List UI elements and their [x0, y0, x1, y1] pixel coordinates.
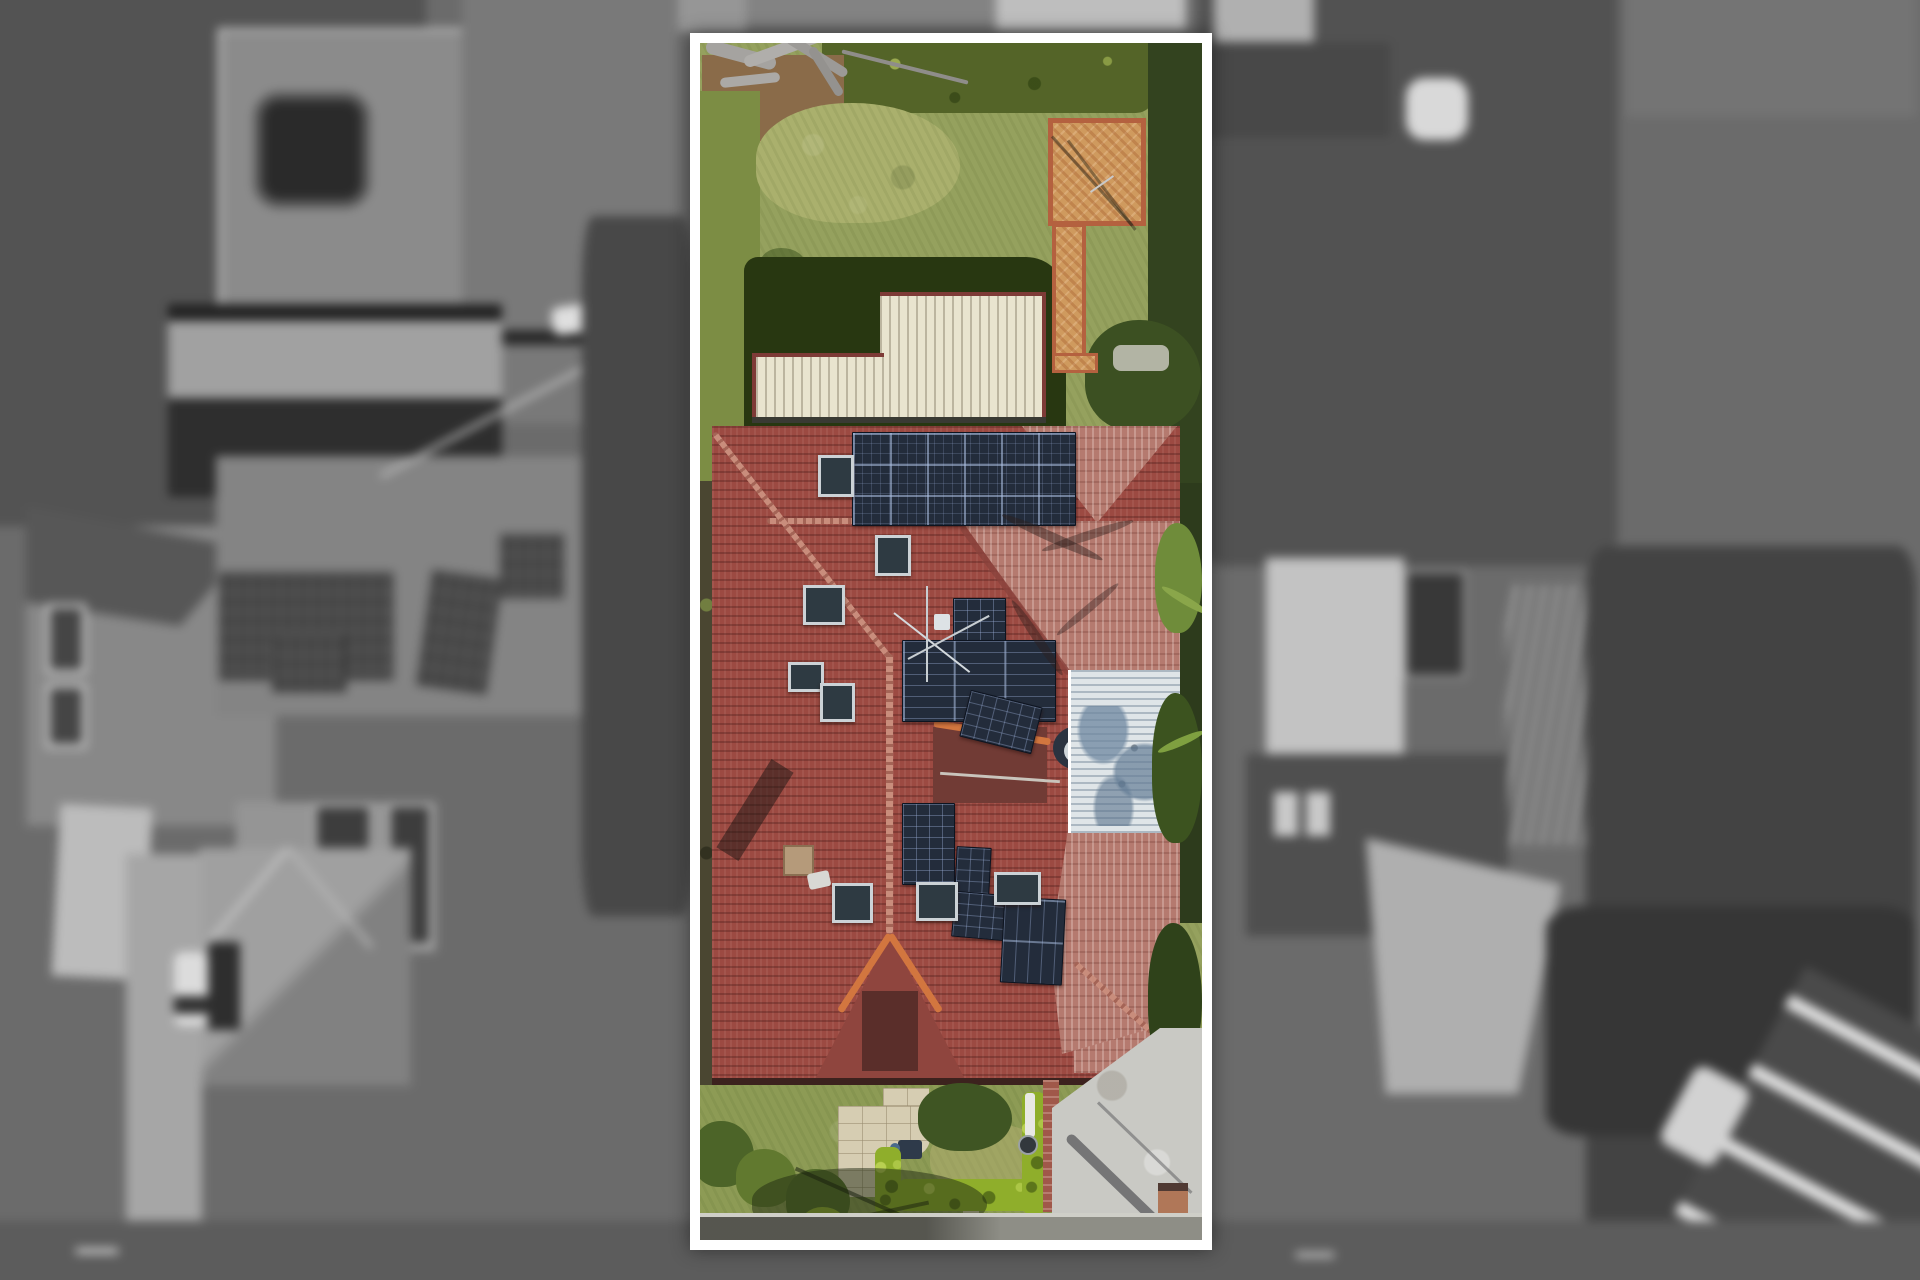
garden-wheel [1018, 1135, 1038, 1155]
garden-tree [918, 1083, 1012, 1151]
wheelie-bin [898, 1140, 922, 1159]
skylight [820, 683, 855, 722]
street-strip [700, 1217, 1202, 1240]
bg-deck-roof [1214, 0, 1314, 44]
aerial-listing-image [0, 0, 1920, 1280]
bg-trees-left-of-frame [582, 216, 692, 916]
antenna-plate [934, 614, 950, 630]
bg-white-blob [1406, 78, 1468, 140]
cream-garage-roof-left [752, 353, 884, 421]
bg-window-grid3 [1404, 570, 1466, 678]
bg-dark-porch [208, 942, 240, 1030]
chimney [783, 845, 814, 876]
rear-hedge [822, 43, 1154, 113]
tv-antenna-mast [926, 586, 928, 682]
sunlit-lawn-patch [756, 103, 960, 223]
bg-driveway-left [126, 854, 202, 1266]
bg-solar-array2 [272, 634, 346, 692]
bg-car-window [174, 996, 208, 1014]
brick-patio [1048, 118, 1146, 226]
skylight [788, 662, 824, 692]
property-photo [700, 43, 1202, 1240]
bg-roof-top2 [746, 0, 996, 26]
skylight [803, 585, 845, 625]
bg-road-topright [1626, 0, 1916, 116]
solar-block-lower-right [1000, 896, 1066, 985]
brick-path [1052, 223, 1086, 373]
property-boundary-frame [690, 33, 1212, 1250]
bg-window2 [46, 684, 86, 748]
shaded-grass-right [1085, 320, 1201, 432]
bg-skylight1 [1274, 792, 1298, 836]
garage-eave-shadow [752, 417, 1046, 423]
main-house-roof [712, 426, 1180, 1085]
skylight [875, 535, 911, 576]
bg-road-marking1 [76, 1248, 118, 1254]
skylight [832, 883, 873, 923]
bg-skylight2 [1306, 792, 1330, 836]
skylight [916, 882, 958, 921]
bg-deck-railing [1201, 42, 1391, 138]
solar-array-top [852, 432, 1076, 526]
skylight [994, 872, 1041, 905]
bg-roof-top3 [996, 0, 1186, 30]
roof-vent [807, 870, 832, 890]
cream-garage-roof [880, 292, 1046, 421]
roof-ridge-vertical [886, 654, 893, 934]
bg-corrugated-roof-right [1266, 558, 1404, 772]
bg-road-marking2 [1296, 1252, 1334, 1258]
garden-bench [1025, 1093, 1035, 1137]
palm-tree-crown [1155, 523, 1202, 633]
bg-window1 [46, 604, 86, 674]
brick-path-end [1052, 353, 1098, 373]
bg-solar-array4 [500, 534, 564, 598]
gable-attic-panel [862, 991, 918, 1071]
solar-pair-lower [902, 803, 955, 885]
bg-car-white [174, 952, 208, 1026]
chimney-shadow [716, 759, 793, 861]
bg-pool [254, 92, 370, 208]
skylight [818, 455, 854, 497]
stone-pad [1113, 345, 1169, 371]
